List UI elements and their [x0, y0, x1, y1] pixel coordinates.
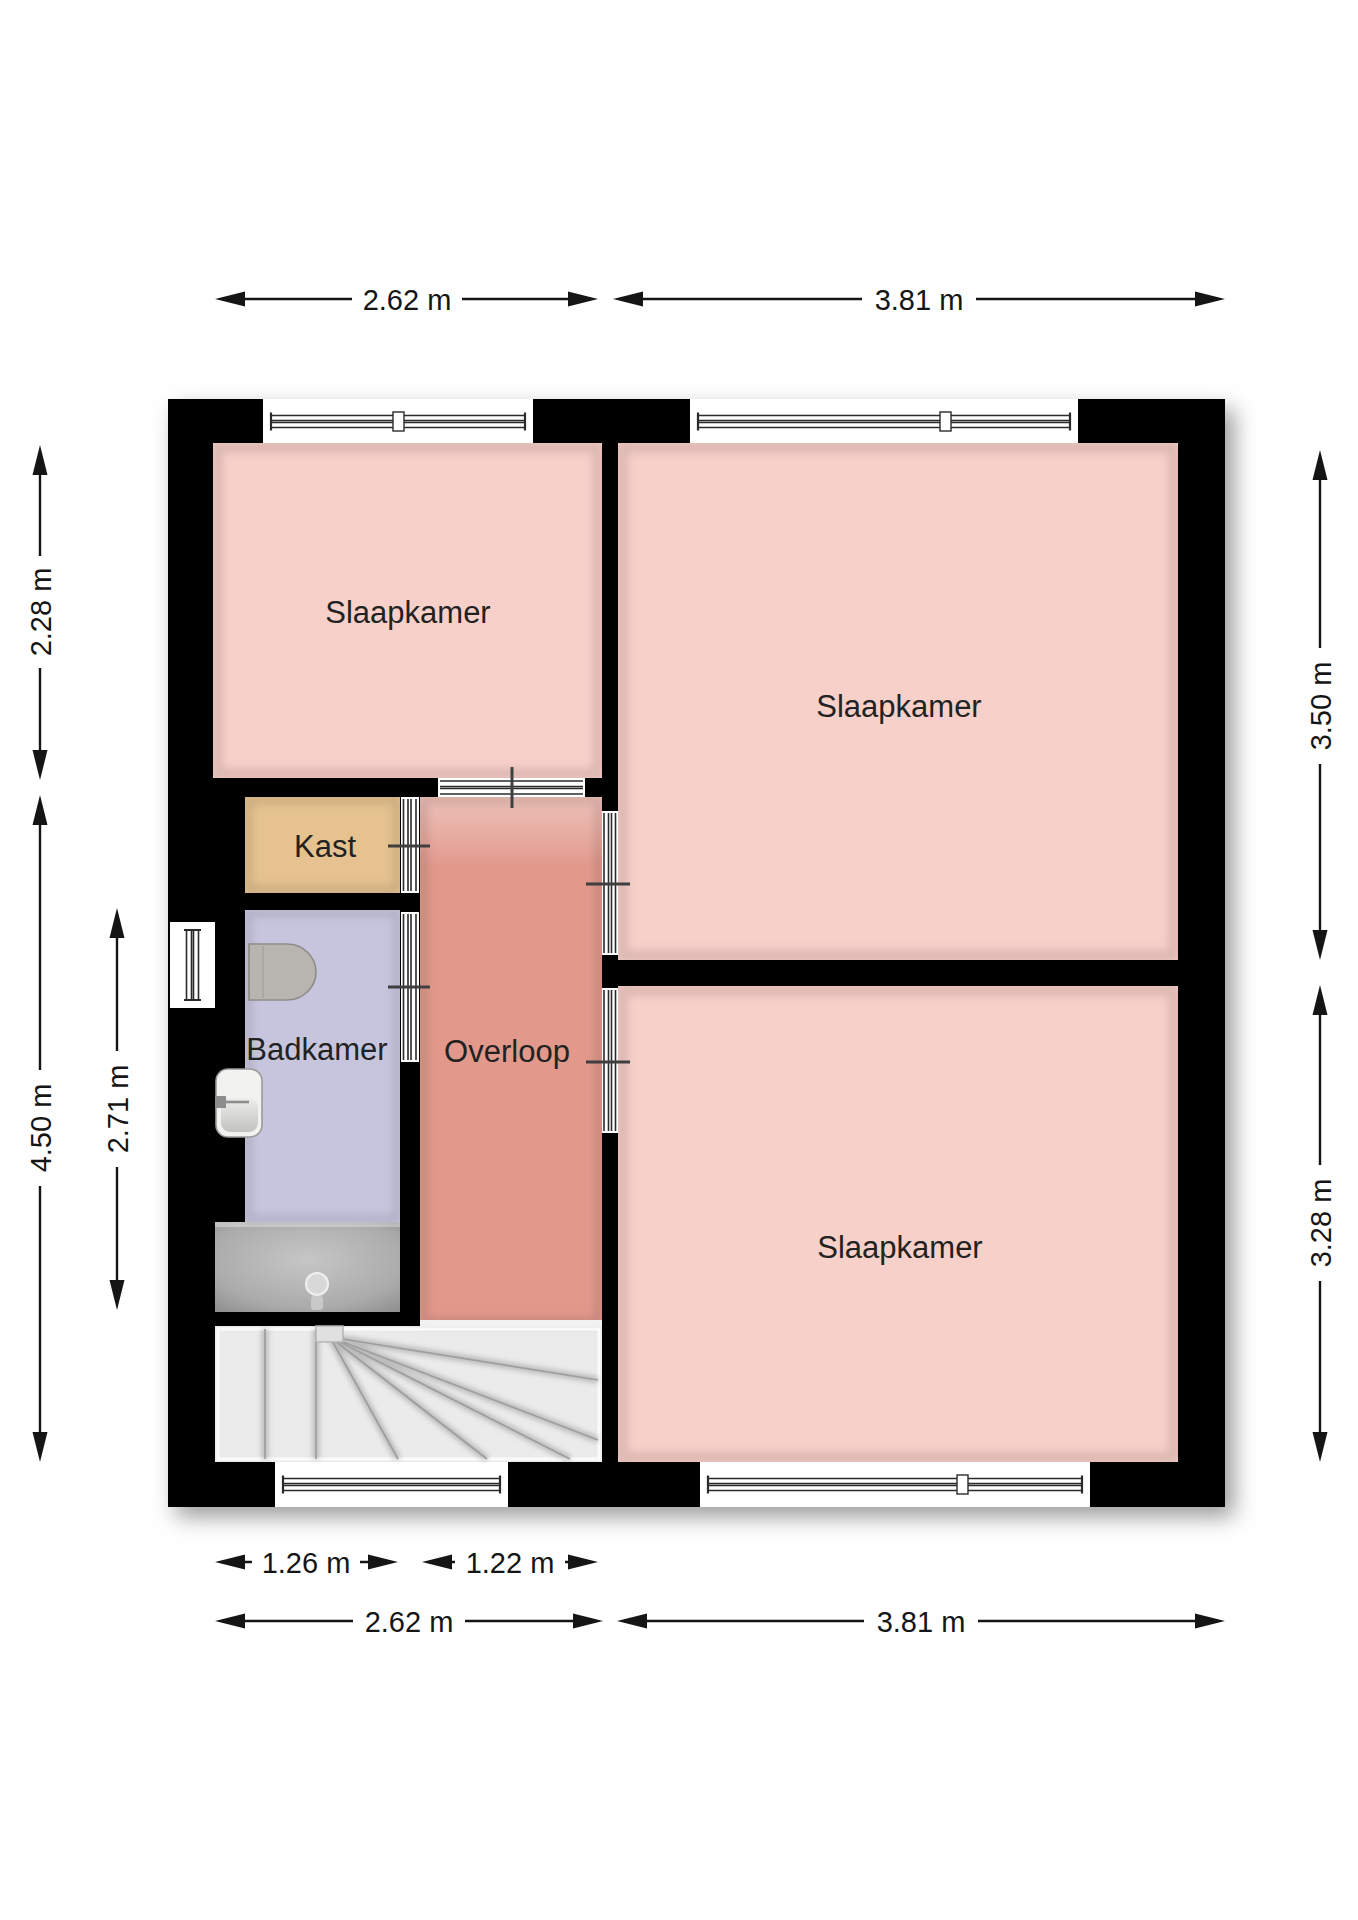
window-top-right [690, 399, 1078, 443]
window-top-left [263, 399, 533, 443]
arrow-down-icon [1313, 930, 1328, 960]
shower-edge-highlight [215, 1222, 400, 1227]
label-slaapkamer-bottom-right: Slaapkamer [817, 1230, 982, 1265]
window-bottom-right [700, 1462, 1090, 1507]
dimension-right-upper: 3.50 m [1305, 450, 1337, 960]
arrow-right-icon [1195, 1614, 1225, 1629]
arrow-down-icon [33, 1432, 48, 1462]
arrow-right-icon [1195, 292, 1225, 307]
dimension-bottom-stairs: 1.26 m [215, 1547, 398, 1579]
window-mullion [940, 412, 951, 431]
window-frame [275, 1462, 508, 1507]
washbasin-icon [215, 1069, 262, 1137]
arrow-right-icon [368, 1555, 398, 1570]
dim-label: 3.81 m [875, 284, 964, 316]
arrow-right-icon [568, 292, 598, 307]
dimension-bottom-overloop: 1.22 m [422, 1547, 598, 1579]
dimension-left-upper: 2.28 m [25, 445, 57, 780]
floorplan: Slaapkamer Slaapkamer Slaapkamer Kast Ba… [0, 0, 1358, 1920]
dim-label: 2.62 m [365, 1606, 454, 1638]
arrow-up-icon [1313, 985, 1328, 1015]
dimension-bottom-right-width: 3.81 m [617, 1606, 1225, 1638]
window-bottom-left [275, 1462, 508, 1507]
window-mullion [393, 412, 404, 431]
toilet-icon [249, 944, 316, 1000]
arrow-left-icon [422, 1555, 452, 1570]
stair-landing-edge [420, 1320, 602, 1327]
dim-label: 1.26 m [262, 1547, 351, 1579]
arrow-down-icon [110, 1280, 125, 1310]
dimension-left-inner: 2.71 m [102, 908, 134, 1310]
window-left-wall [170, 922, 215, 1008]
arrow-right-icon [568, 1555, 598, 1570]
arrow-left-icon [215, 292, 245, 307]
arrow-up-icon [1313, 450, 1328, 480]
dim-label: 3.81 m [877, 1606, 966, 1638]
floorplan-canvas: Slaapkamer Slaapkamer Slaapkamer Kast Ba… [0, 0, 1358, 1920]
arrow-left-icon [215, 1555, 245, 1570]
arrow-left-icon [617, 1614, 647, 1629]
stair-newel-post [316, 1326, 343, 1342]
label-slaapkamer-top-left: Slaapkamer [325, 595, 490, 630]
arrow-up-icon [33, 795, 48, 825]
label-slaapkamer-top-right: Slaapkamer [816, 689, 981, 724]
dim-label: 2.62 m [363, 284, 452, 316]
window-frame [170, 922, 215, 1008]
arrow-left-icon [613, 292, 643, 307]
arrow-down-icon [1313, 1432, 1328, 1462]
window-frame [700, 1462, 1090, 1507]
label-badkamer: Badkamer [246, 1032, 387, 1067]
dim-label: 4.50 m [25, 1084, 57, 1173]
room-slaapkamer-bottom-right [618, 986, 1178, 1462]
label-overloop: Overloop [444, 1034, 570, 1069]
arrow-up-icon [33, 445, 48, 475]
dimension-top-right-width: 3.81 m [613, 284, 1225, 316]
dimension-bottom-left-width: 2.62 m [215, 1606, 603, 1638]
shower-floor [215, 1222, 400, 1312]
label-kast: Kast [294, 829, 356, 864]
dim-label: 3.28 m [1305, 1179, 1337, 1268]
dimension-top-left-width: 2.62 m [215, 284, 598, 316]
dimension-left-full: 4.50 m [25, 795, 57, 1462]
arrow-down-icon [33, 750, 48, 780]
arrow-left-icon [215, 1614, 245, 1629]
dim-label: 2.71 m [102, 1065, 134, 1154]
arrow-up-icon [110, 908, 125, 938]
dim-label: 2.28 m [25, 568, 57, 657]
window-mullion [957, 1475, 968, 1494]
dimension-right-lower: 3.28 m [1305, 985, 1337, 1462]
arrow-right-icon [573, 1614, 603, 1629]
dim-label: 1.22 m [466, 1547, 555, 1579]
dim-label: 3.50 m [1305, 662, 1337, 751]
